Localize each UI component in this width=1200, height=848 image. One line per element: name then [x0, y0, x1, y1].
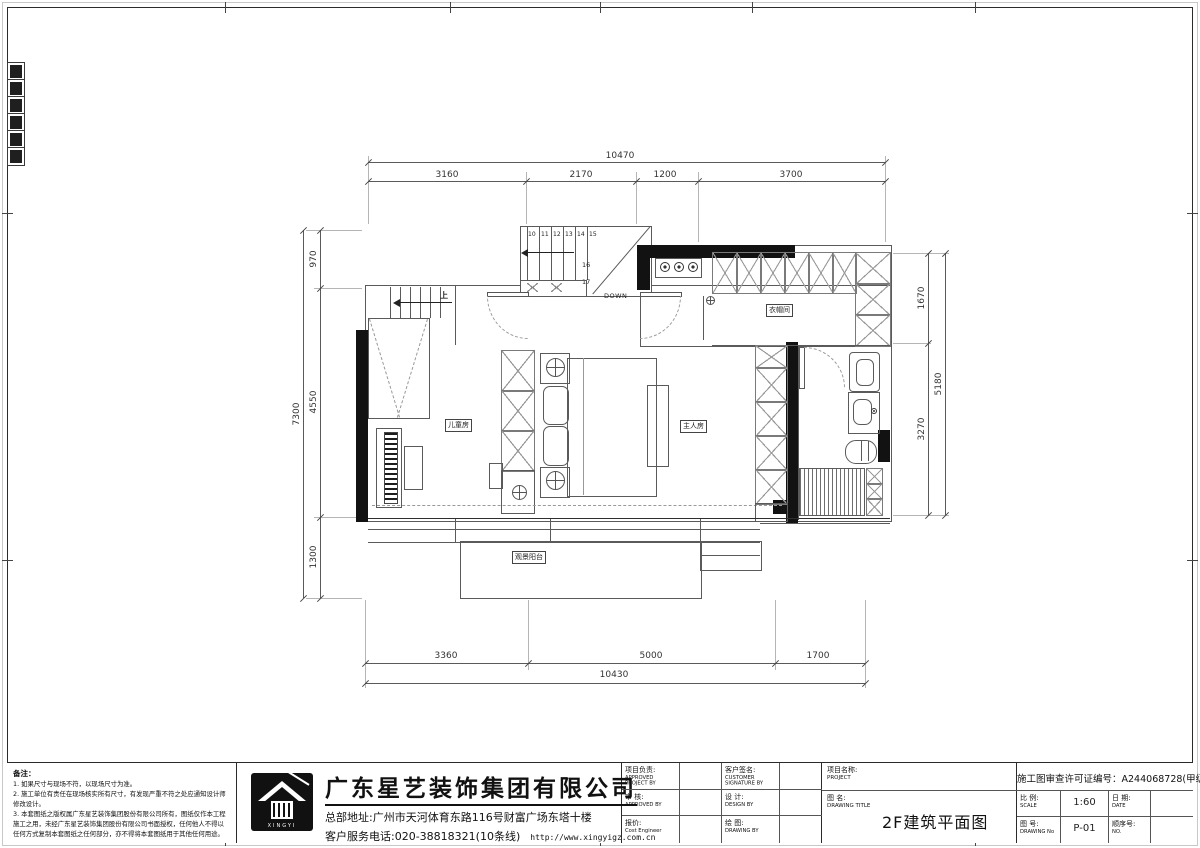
stair-tread: [563, 226, 564, 280]
frame-tick: [225, 2, 226, 13]
children-side-table: [489, 463, 503, 489]
logo-caption: XINGYI: [251, 823, 313, 829]
dim-right-seg-2: 3270: [917, 416, 927, 443]
seq-label-cn: 顺序号:: [1112, 819, 1147, 829]
dim-line: [320, 230, 321, 598]
cloak-cabinet: [760, 252, 786, 294]
room-label-cloak: 衣帽间: [766, 304, 793, 317]
piano-keys: [384, 432, 398, 504]
stair-tread: [587, 226, 588, 280]
cloak-cabinet: [855, 252, 891, 285]
sig-customer: 客户签名:CUSTOMER SIGNATURE BY: [722, 763, 780, 790]
balcony-outline: [460, 541, 702, 599]
sig-blank: [680, 816, 722, 843]
dim-top-seg-1: 3160: [434, 170, 461, 180]
company-name: 广东星艺装饰集团有限公司: [325, 769, 637, 806]
window-mid-line: [368, 529, 760, 530]
sig-approved: 审 核:APPROVED BY: [622, 790, 680, 817]
dim-top-seg-3: 1200: [652, 170, 679, 180]
dim-right-total: 5180: [934, 371, 944, 398]
dim-left-seg-2: 4550: [309, 389, 319, 416]
wardrobe-top-left: [368, 318, 430, 419]
drawing-no-row: 图 号: DRAWING No P-01 顺序号: NO.: [1017, 817, 1193, 843]
dim-top-total: 10470: [604, 151, 637, 161]
frame-tick: [1187, 560, 1198, 561]
company-logo: XINGYI: [251, 773, 313, 831]
stair-landing-mark: [527, 283, 538, 292]
children-wardrobe: [501, 350, 535, 392]
dim-bottom-seg-1: 3360: [433, 651, 460, 661]
company-info: 广东星艺装饰集团有限公司 总部地址:广州市天河体育东路116号财富广场东塔十楼 …: [325, 769, 655, 844]
extension-line: [368, 156, 369, 224]
notes-panel: 备注： 1. 如果尺寸与现场不符，以现场尺寸为准。 2. 施工单位有责任在现场核…: [7, 763, 237, 843]
dim-bottom-seg-2: 5000: [638, 651, 665, 661]
stair-tread-number: 10: [528, 231, 536, 238]
date-label-cn: 日 期:: [1112, 793, 1147, 803]
frame-tick: [600, 2, 601, 13]
no-label-en: DRAWING No: [1020, 829, 1055, 835]
extension-line: [893, 515, 949, 516]
date-value-cell: [1151, 791, 1193, 817]
balcony-step: [700, 541, 762, 571]
cloak-cabinet: [712, 252, 738, 294]
company-block: XINGYI 广东星艺装饰集团有限公司 总部地址:广州市天河体育东路116号财富…: [237, 763, 622, 843]
dim-line: [365, 683, 865, 684]
cloak-cabinet: [855, 314, 891, 347]
cloak-ceiling-lamp: [706, 296, 715, 305]
sig-blank: [780, 763, 822, 790]
dim-line: [365, 663, 865, 664]
window-band: [368, 518, 760, 543]
notes-line-3: 3. 本套图纸之版权属广东星艺装饰集团股份有限公司所有，图纸仅作本工程施工之用，…: [13, 810, 230, 840]
cloak-cabinet: [832, 252, 857, 294]
seq-value-cell: [1151, 817, 1193, 843]
extension-line: [885, 156, 886, 242]
notes-line-1: 1. 如果尺寸与现场不符，以现场尺寸为准。: [13, 780, 230, 790]
notes-title: 备注：: [13, 769, 36, 778]
frame-tick: [752, 2, 753, 13]
hanger-hook: [660, 262, 670, 272]
stamp-box: [7, 147, 25, 166]
seq-label-en: NO.: [1112, 829, 1145, 835]
frame-tick: [450, 2, 451, 13]
drawing-no-value: P-01: [1061, 817, 1109, 843]
drawing-sheet: { "plan": { "dims": { "top": { "total": …: [0, 0, 1200, 848]
stair-direction-arrow: [524, 252, 574, 253]
bottom-wall-right: [760, 518, 890, 524]
cloak-bottom-wall: [712, 345, 890, 346]
stair-tread-number: 14: [577, 231, 585, 238]
dim-top-seg-4: 3700: [778, 170, 805, 180]
master-wardrobe: [755, 345, 788, 369]
wall-left: [356, 330, 368, 522]
signature-grid: 项目负责:APPROVED PROJECT BY 客户签名:CUSTOMER S…: [622, 763, 822, 843]
window-mullion: [455, 519, 456, 542]
frame-tick: [2, 560, 13, 561]
dim-line: [368, 181, 885, 182]
stair-tread-number: 13: [565, 231, 573, 238]
logo-roof-inner: [264, 787, 300, 802]
sink-faucet: [871, 408, 877, 414]
sink-basin: [853, 399, 872, 425]
project-label-cn: 项目名称:: [827, 765, 1012, 775]
dim-top-seg-2: 2170: [568, 170, 595, 180]
company-phone-line: 客户服务电话:020-38818321(10条线)http://www.xing…: [325, 828, 655, 844]
wall-right-chunk: [878, 430, 890, 462]
extension-line: [365, 600, 366, 688]
frame-tick: [1187, 213, 1198, 214]
scale-label-en: SCALE: [1020, 803, 1055, 809]
sig-cost: 报价:Cost Engineer: [622, 816, 680, 843]
dim-line: [928, 253, 929, 515]
extension-line: [893, 343, 931, 344]
logo-house-columns: [273, 803, 291, 817]
sig-blank: [780, 790, 822, 817]
extension-line: [306, 598, 362, 599]
nightstand-lamp: [546, 358, 565, 377]
cloak-cabinet: [855, 283, 891, 316]
master-wardrobe: [755, 401, 788, 437]
scale-value: 1:60: [1061, 791, 1109, 817]
company-phone: 客户服务电话:020-38818321(10条线): [325, 830, 520, 843]
no-label-cn: 图 号:: [1020, 819, 1057, 829]
pillow: [543, 386, 569, 425]
date-label-cell: 日 期: DATE: [1109, 791, 1151, 817]
hanger-hook: [674, 262, 684, 272]
bed-end-bench: [647, 385, 669, 467]
dim-line: [945, 253, 946, 515]
stair-tread: [575, 226, 576, 280]
license-value: A244068728(甲级): [1122, 774, 1200, 785]
cloak-cabinet: [808, 252, 834, 294]
upstair-up-label: 上: [440, 290, 448, 301]
bidet-line: [861, 441, 862, 461]
cloak-cabinet: [784, 252, 810, 294]
pillow: [543, 426, 569, 466]
scale-label-cn: 比 例:: [1020, 793, 1057, 803]
stair-down-label: DOWN: [604, 292, 627, 300]
dim-line: [368, 162, 885, 163]
room-label-master: 主人房: [680, 420, 707, 433]
master-wardrobe: [755, 367, 788, 403]
room-label-children: 儿童房: [445, 419, 472, 432]
project-label-en: PROJECT: [827, 775, 1012, 781]
sig-blank: [780, 816, 822, 843]
master-wardrobe: [755, 469, 788, 505]
room-label-balcony: 观景阳台: [512, 551, 546, 564]
title-bar: 备注： 1. 如果尺寸与现场不符，以现场尺寸为准。 2. 施工单位有责任在现场核…: [7, 762, 1193, 843]
stair-tread-number: 12: [553, 231, 561, 238]
stair-tread-number: 15: [589, 231, 597, 238]
scale-label-cell: 比 例: SCALE: [1017, 791, 1061, 817]
hall-divider-wall: [455, 285, 456, 345]
dim-left-total: 7300: [292, 401, 302, 428]
sig-drawing: 绘 图:DRAWING BY: [722, 816, 780, 843]
sig-approved-project: 项目负责:APPROVED PROJECT BY: [622, 763, 680, 790]
frame-tick: [975, 2, 976, 13]
window-mullion: [550, 519, 551, 542]
dim-right-seg-1: 1670: [917, 285, 927, 312]
drawing-title: 2F建筑平面图: [882, 809, 988, 833]
dim-left-seg-1: 970: [309, 248, 319, 269]
license-label: 施工图审查许可证编号：: [1017, 774, 1122, 785]
bed: [567, 358, 657, 497]
cloak-cabinet: [736, 252, 762, 294]
company-address: 总部地址:广州市天河体育东路116号财富广场东塔十楼: [325, 809, 655, 825]
frame-tick: [2, 213, 13, 214]
bath-shelf: [866, 498, 883, 516]
drawing-label-cn: 图 名:: [827, 793, 1012, 803]
stair-tread: [551, 226, 552, 280]
piano-bench: [404, 446, 423, 490]
window-mullion: [700, 519, 701, 542]
upstair-arrow: [396, 302, 452, 303]
curtain-dash-line: [372, 505, 782, 506]
scale-row: 比 例: SCALE 1:60 日 期: DATE: [1017, 791, 1193, 817]
dim-bottom-seg-3: 1700: [805, 651, 832, 661]
project-block: 项目名称: PROJECT 图 名: DRAWING TITLE 2F建筑平面图: [822, 763, 1017, 843]
ceiling-lamp: [512, 485, 527, 500]
balcony-step-line: [700, 555, 760, 556]
shower-floor: [799, 468, 865, 516]
seq-label-cell: 顺序号: NO.: [1109, 817, 1151, 843]
stair-tread: [539, 226, 540, 280]
nightstand-lamp: [546, 471, 565, 490]
stair-landing-mark: [551, 283, 562, 292]
no-label-cell: 图 号: DRAWING No: [1017, 817, 1061, 843]
extension-line: [865, 600, 866, 688]
dim-left-seg-3: 1300: [309, 544, 319, 571]
sig-blank: [680, 790, 722, 817]
toilet-bowl: [856, 359, 874, 386]
bed-headboard-line: [583, 358, 584, 495]
extension-line: [893, 253, 949, 254]
wall-stair-side: [637, 245, 650, 290]
extension-line: [306, 230, 362, 231]
bidet-line: [868, 441, 869, 461]
master-wardrobe: [755, 435, 788, 471]
license-row: 施工图审查许可证编号：A244068728(甲级): [1017, 763, 1193, 791]
date-label-en: DATE: [1112, 803, 1145, 809]
extension-line: [528, 600, 529, 670]
children-wardrobe: [501, 430, 535, 472]
drawing-title-cell: 图 名: DRAWING TITLE 2F建筑平面图: [822, 791, 1017, 843]
dim-bottom-total: 10430: [598, 670, 631, 680]
children-wardrobe: [501, 390, 535, 432]
sig-blank: [680, 763, 722, 790]
dim-line: [303, 230, 304, 598]
license-block: 施工图审查许可证编号：A244068728(甲级) 比 例: SCALE 1:6…: [1017, 763, 1193, 843]
sig-design: 设 计:DESIGN BY: [722, 790, 780, 817]
hanger-hook: [688, 262, 698, 272]
project-name-cell: 项目名称: PROJECT: [822, 763, 1017, 791]
notes-line-2: 2. 施工单位有责任在现场核实所有尺寸，有发现严重不符之处应通知设计师修改设计。: [13, 790, 230, 810]
cloak-door-line: [703, 296, 704, 340]
extension-line: [775, 600, 776, 670]
stair-number-16: 16: [582, 261, 590, 269]
stair-tread-number: 11: [541, 231, 549, 238]
